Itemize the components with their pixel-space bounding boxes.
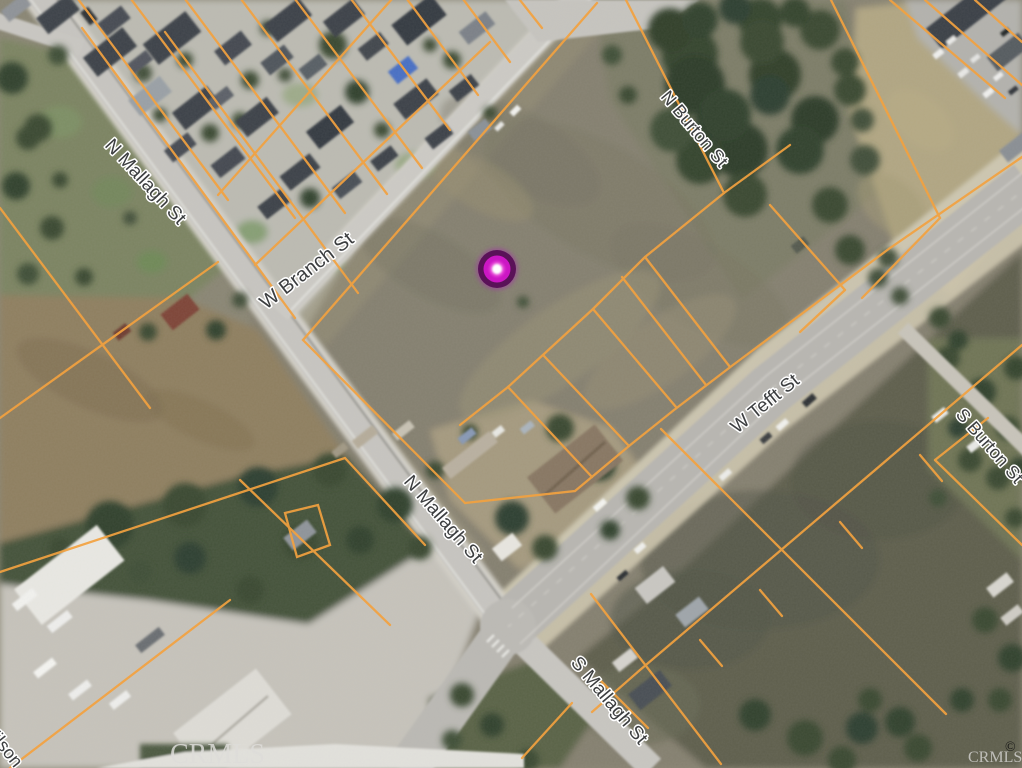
svg-text:©: ©: [1005, 740, 1016, 755]
svg-text:CRMLS: CRMLS: [170, 739, 265, 768]
